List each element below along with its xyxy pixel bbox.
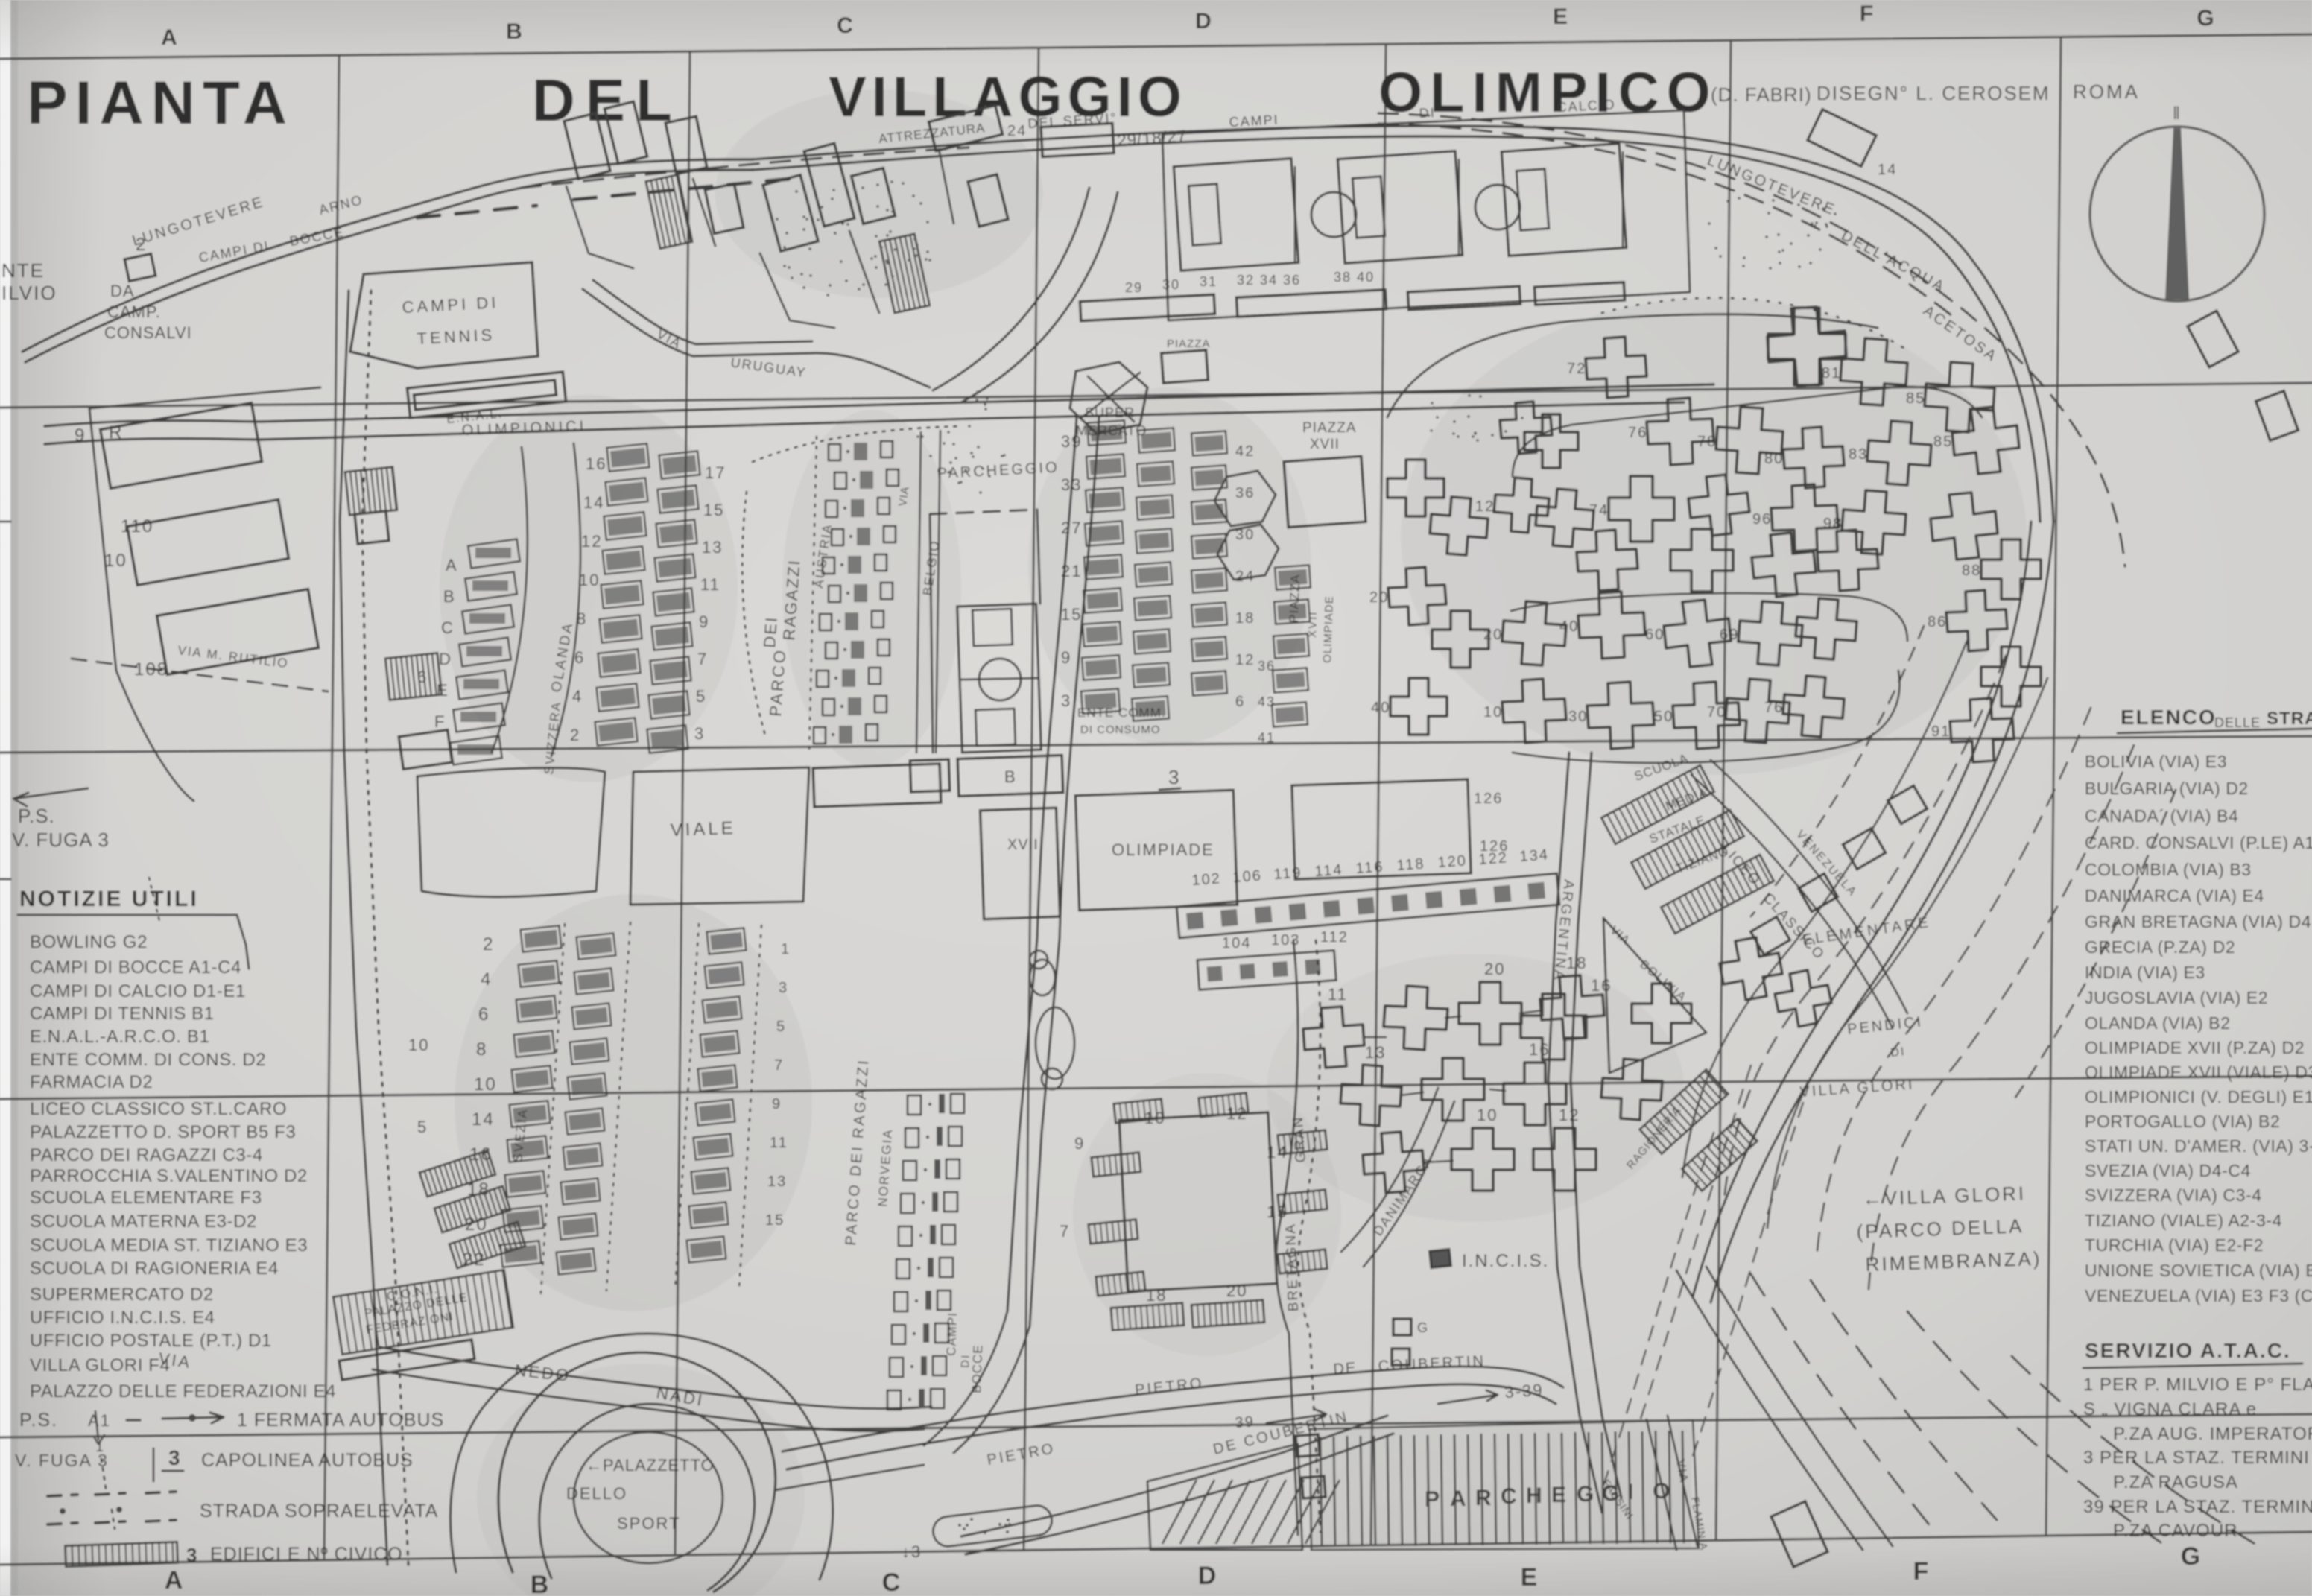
svg-text:6: 6 bbox=[574, 648, 585, 667]
svg-text:H: H bbox=[1526, 1483, 1544, 1508]
svg-text:9: 9 bbox=[699, 612, 709, 631]
svg-text:11: 11 bbox=[700, 575, 720, 594]
svg-text:CAMPI: CAMPI bbox=[1229, 113, 1279, 130]
svg-text:43: 43 bbox=[1258, 694, 1276, 709]
svg-text:PIANTA: PIANTA bbox=[27, 69, 294, 137]
svg-text:CAPOLINEA AUTOBUS: CAPOLINEA AUTOBUS bbox=[201, 1450, 414, 1471]
svg-text:R: R bbox=[109, 422, 123, 443]
svg-text:27: 27 bbox=[1061, 519, 1082, 537]
svg-text:A: A bbox=[161, 25, 177, 50]
svg-text:36: 36 bbox=[1235, 485, 1255, 501]
svg-text:8: 8 bbox=[476, 1039, 487, 1060]
svg-text:P: P bbox=[1425, 1487, 1441, 1512]
svg-text:16: 16 bbox=[586, 455, 606, 473]
svg-text:3: 3 bbox=[168, 1446, 182, 1469]
svg-text:6: 6 bbox=[478, 1004, 490, 1025]
svg-text:14: 14 bbox=[1878, 162, 1897, 178]
svg-text:7: 7 bbox=[774, 1057, 784, 1074]
svg-text:B: B bbox=[506, 19, 522, 44]
svg-text:F: F bbox=[1913, 1557, 1929, 1586]
svg-text:CARD. CONSALVI (P.LE) A1: CARD. CONSALVI (P.LE) A1 bbox=[2085, 833, 2312, 852]
svg-text:V. FUGA 3: V. FUGA 3 bbox=[15, 1451, 109, 1470]
svg-text:83: 83 bbox=[1849, 446, 1868, 463]
svg-text:16: 16 bbox=[1591, 976, 1612, 995]
svg-text:DE: DE bbox=[1333, 1360, 1358, 1378]
svg-text:PARROCCHIA S.VALENTINO D2: PARROCCHIA S.VALENTINO D2 bbox=[30, 1166, 308, 1186]
svg-text:BRETAGNA: BRETAGNA bbox=[1283, 1223, 1302, 1312]
svg-text:BULGARIA (VIA) D2: BULGARIA (VIA) D2 bbox=[2085, 779, 2249, 798]
svg-text:4: 4 bbox=[481, 969, 492, 989]
svg-text:81: 81 bbox=[1822, 365, 1841, 381]
svg-text:30: 30 bbox=[1162, 277, 1180, 292]
svg-text:C: C bbox=[441, 618, 455, 637]
svg-text:103: 103 bbox=[1271, 932, 1300, 949]
svg-text:10: 10 bbox=[1144, 1109, 1165, 1127]
svg-text:E.N.A.L.-A.R.C.O. B1: E.N.A.L.-A.R.C.O. B1 bbox=[30, 1027, 209, 1047]
svg-text:40: 40 bbox=[1559, 618, 1579, 635]
svg-text:2: 2 bbox=[483, 934, 494, 954]
svg-text:88: 88 bbox=[1962, 563, 1981, 579]
svg-text:12: 12 bbox=[1559, 1106, 1580, 1124]
svg-text:P.S.: P.S. bbox=[18, 805, 55, 827]
svg-text:GRECIA (P.ZA) D2: GRECIA (P.ZA) D2 bbox=[2085, 937, 2235, 957]
svg-text:78: 78 bbox=[1697, 434, 1717, 450]
svg-text:D: D bbox=[1195, 9, 1212, 34]
svg-text:12: 12 bbox=[581, 532, 602, 551]
svg-text:3: 3 bbox=[1168, 766, 1180, 788]
svg-text:DI: DI bbox=[1419, 105, 1436, 121]
svg-text:PIAZZA: PIAZZA bbox=[1287, 574, 1302, 623]
svg-text:118: 118 bbox=[1396, 855, 1425, 874]
svg-text:32 34 36: 32 34 36 bbox=[1237, 273, 1301, 288]
svg-text:SCUOLA MATERNA E3-D2: SCUOLA MATERNA E3-D2 bbox=[30, 1212, 257, 1232]
svg-text:PALAZZETTO D. SPORT B5 F3: PALAZZETTO D. SPORT B5 F3 bbox=[30, 1122, 296, 1142]
svg-text:98: 98 bbox=[1823, 516, 1843, 532]
svg-text:85: 85 bbox=[1933, 434, 1953, 450]
svg-text:10: 10 bbox=[474, 1074, 497, 1095]
svg-text:33: 33 bbox=[1061, 475, 1082, 494]
svg-text:17: 17 bbox=[705, 463, 726, 482]
svg-text:36: 36 bbox=[1258, 659, 1276, 674]
svg-text:DELLE: DELLE bbox=[2214, 715, 2261, 730]
svg-text:UNIONE SOVIETICA (VIA) B3: UNIONE SOVIETICA (VIA) B3 bbox=[2085, 1261, 2312, 1280]
svg-text:E: E bbox=[1551, 1483, 1568, 1507]
svg-text:74: 74 bbox=[1589, 502, 1609, 519]
svg-text:DEI: DEI bbox=[760, 615, 781, 648]
svg-text:86: 86 bbox=[1928, 614, 1947, 630]
svg-text:10: 10 bbox=[104, 551, 127, 571]
svg-text:D: D bbox=[439, 650, 452, 668]
svg-text:5: 5 bbox=[417, 1118, 428, 1136]
svg-text:6: 6 bbox=[1235, 694, 1245, 710]
svg-text:OLANDA (VIA) B2: OLANDA (VIA) B2 bbox=[2085, 1013, 2231, 1033]
svg-text:110: 110 bbox=[121, 516, 153, 536]
svg-text:R: R bbox=[1475, 1486, 1493, 1510]
svg-text:PORTOGALLO (VIA) B2: PORTOGALLO (VIA) B2 bbox=[2085, 1112, 2280, 1131]
svg-text:13: 13 bbox=[767, 1174, 787, 1190]
svg-text:OLIMPIADE: OLIMPIADE bbox=[1112, 840, 1214, 859]
svg-text:STRADE: STRADE bbox=[2267, 709, 2312, 729]
svg-text:G: G bbox=[1577, 1482, 1595, 1507]
svg-text:16: 16 bbox=[1529, 1040, 1550, 1059]
svg-text:72: 72 bbox=[1567, 361, 1586, 377]
svg-text:SUPER: SUPER bbox=[1085, 405, 1135, 420]
svg-text:UFFICIO I.N.C.I.S. E4: UFFICIO I.N.C.I.S. E4 bbox=[30, 1308, 215, 1328]
svg-text:P.ZA AUG. IMPERATORE: P.ZA AUG. IMPERATORE bbox=[2113, 1424, 2312, 1444]
svg-text:DA: DA bbox=[110, 282, 135, 300]
svg-text:9: 9 bbox=[1061, 648, 1071, 667]
svg-text:(D. FABRI): (D. FABRI) bbox=[1711, 83, 1812, 106]
svg-text:7: 7 bbox=[1060, 1222, 1070, 1241]
svg-text:MERCATO: MERCATO bbox=[1076, 423, 1147, 438]
svg-text:85: 85 bbox=[1906, 390, 1925, 407]
svg-text:JUGOSLAVIA (VIA) E2: JUGOSLAVIA (VIA) E2 bbox=[2085, 988, 2268, 1007]
svg-text:VIALE: VIALE bbox=[670, 818, 736, 840]
svg-text:INDIA (VIA) E3: INDIA (VIA) E3 bbox=[2085, 963, 2205, 982]
svg-text:B: B bbox=[443, 587, 456, 606]
svg-text:60: 60 bbox=[1645, 627, 1665, 643]
svg-text:10: 10 bbox=[579, 571, 600, 589]
svg-text:CALCIO: CALCIO bbox=[1556, 97, 1616, 115]
svg-text:P.S.: P.S. bbox=[19, 1410, 58, 1431]
svg-text:91: 91 bbox=[1931, 723, 1951, 740]
svg-text:18: 18 bbox=[1146, 1286, 1167, 1305]
svg-text:114: 114 bbox=[1314, 861, 1343, 880]
svg-text:1: 1 bbox=[781, 941, 791, 957]
svg-text:11: 11 bbox=[1328, 985, 1348, 1004]
svg-text:126: 126 bbox=[1474, 791, 1503, 807]
svg-text:13: 13 bbox=[1365, 1043, 1386, 1062]
svg-text:SCUOLA ELEMENTARE F3: SCUOLA ELEMENTARE F3 bbox=[30, 1188, 262, 1208]
svg-text:C: C bbox=[1501, 1484, 1518, 1509]
svg-text:6: 6 bbox=[417, 668, 428, 686]
svg-text:13: 13 bbox=[702, 538, 723, 557]
svg-text:GRAN BRETAGNA (VIA) D4: GRAN BRETAGNA (VIA) D4 bbox=[2085, 912, 2311, 931]
svg-text:CONSALVI: CONSALVI bbox=[104, 323, 192, 342]
svg-text:14: 14 bbox=[583, 493, 604, 512]
svg-text:12: 12 bbox=[1475, 498, 1495, 515]
svg-text:126: 126 bbox=[1480, 838, 1509, 855]
svg-text:15: 15 bbox=[1267, 1203, 1288, 1221]
svg-text:A: A bbox=[165, 1566, 183, 1595]
svg-text:CANADA´ (VIA) B4: CANADA´ (VIA) B4 bbox=[2085, 806, 2238, 826]
svg-text:OLIMPIONICI (V. DEGLI) E1-F1: OLIMPIONICI (V. DEGLI) E1-F1 bbox=[2085, 1087, 2312, 1106]
svg-text:3: 3 bbox=[779, 980, 788, 996]
svg-text:VILLAGGIO: VILLAGGIO bbox=[829, 66, 1187, 129]
svg-text:20: 20 bbox=[1369, 589, 1389, 606]
svg-text:ROMA: ROMA bbox=[2073, 80, 2140, 103]
svg-text:SUPERMERCATO D2: SUPERMERCATO D2 bbox=[30, 1285, 214, 1305]
svg-text:STATI UN. D'AMER. (VIA) 3-4: STATI UN. D'AMER. (VIA) 3-4 bbox=[2085, 1136, 2312, 1156]
svg-text:2: 2 bbox=[570, 726, 580, 744]
svg-text:116: 116 bbox=[1355, 858, 1384, 877]
svg-text:CAMPI DI BOCCE A1-C4: CAMPI DI BOCCE A1-C4 bbox=[30, 957, 241, 978]
svg-text:70: 70 bbox=[1707, 704, 1726, 721]
svg-text:29: 29 bbox=[1125, 280, 1143, 295]
svg-text:A: A bbox=[446, 556, 458, 574]
svg-text:STRADA SOPRAELEVATA: STRADA SOPRAELEVATA bbox=[200, 1501, 438, 1521]
svg-text:G: G bbox=[2197, 6, 2214, 31]
svg-text:20: 20 bbox=[1226, 1282, 1247, 1300]
svg-text:3-39: 3-39 bbox=[1504, 1380, 1545, 1402]
svg-text:14: 14 bbox=[1267, 1143, 1288, 1162]
svg-text:COLOMBIA (VIA) B3: COLOMBIA (VIA) B3 bbox=[2085, 860, 2252, 879]
svg-text:OLIMPIADE: OLIMPIADE bbox=[1321, 595, 1336, 663]
svg-text:3: 3 bbox=[694, 724, 705, 743]
svg-text:50: 50 bbox=[1654, 709, 1673, 725]
svg-text:NTE: NTE bbox=[1, 259, 45, 282]
svg-text:I: I bbox=[1627, 1480, 1635, 1504]
svg-text:120: 120 bbox=[1437, 852, 1468, 871]
svg-text:119: 119 bbox=[1273, 864, 1302, 883]
svg-text:SCUOLA MEDIA ST. TIZIANO E3: SCUOLA MEDIA ST. TIZIANO E3 bbox=[30, 1235, 308, 1255]
svg-text:104: 104 bbox=[1222, 935, 1251, 951]
svg-text:7: 7 bbox=[697, 650, 708, 668]
svg-text:F: F bbox=[434, 712, 446, 731]
svg-text:24: 24 bbox=[1007, 123, 1027, 139]
svg-text:B: B bbox=[531, 1571, 549, 1596]
svg-text:E: E bbox=[437, 681, 449, 700]
svg-text:1 PER P. MILVIO E P° FLAM.: 1 PER P. MILVIO E P° FLAM. bbox=[2083, 1375, 2312, 1395]
svg-text:VENEZUELA (VIA) E3 F3 (C3: VENEZUELA (VIA) E3 F3 (C3 bbox=[2085, 1286, 2312, 1305]
svg-text:15: 15 bbox=[703, 501, 724, 519]
svg-text:DISEGN° L. CEROSEM: DISEGN° L. CEROSEM bbox=[1817, 82, 2050, 104]
svg-text:↓3: ↓3 bbox=[902, 1542, 922, 1561]
svg-text:DI CONSUMO: DI CONSUMO bbox=[1080, 723, 1161, 736]
svg-text:21: 21 bbox=[1061, 562, 1082, 580]
svg-text:9: 9 bbox=[1074, 1134, 1085, 1153]
svg-text:ELENCO: ELENCO bbox=[2121, 706, 2217, 729]
svg-text:80: 80 bbox=[1764, 451, 1784, 467]
svg-text:12: 12 bbox=[1235, 652, 1255, 668]
svg-text:CAMPI: CAMPI bbox=[944, 1312, 960, 1356]
svg-text:10: 10 bbox=[1483, 704, 1503, 721]
svg-text:12: 12 bbox=[1226, 1104, 1247, 1123]
svg-text:G: G bbox=[1417, 1320, 1429, 1335]
svg-text:SVIZZERA (VIA) C3-4: SVIZZERA (VIA) C3-4 bbox=[2085, 1185, 2262, 1205]
svg-text:OLIMPIADE XVII (VIALE) D3: OLIMPIADE XVII (VIALE) D3 bbox=[2085, 1063, 2312, 1082]
svg-text:PARCO DEI RAGAZZI C3-4: PARCO DEI RAGAZZI C3-4 bbox=[30, 1145, 263, 1165]
svg-text:A1: A1 bbox=[88, 1411, 111, 1430]
svg-text:C: C bbox=[837, 13, 853, 38]
svg-text:UFFICIO POSTALE (P.T.) D1: UFFICIO POSTALE (P.T.) D1 bbox=[30, 1331, 272, 1351]
svg-text:20: 20 bbox=[1484, 960, 1505, 978]
svg-text:TURCHIA (VIA) E2-F2: TURCHIA (VIA) E2-F2 bbox=[2085, 1235, 2264, 1255]
svg-text:PIAZZA: PIAZZA bbox=[1302, 420, 1357, 436]
svg-text:BOWLING G2: BOWLING G2 bbox=[30, 932, 148, 952]
svg-text:SVEZIA (VIA) D4-C4: SVEZIA (VIA) D4-C4 bbox=[2085, 1161, 2251, 1180]
svg-text:BOCCE: BOCCE bbox=[969, 1344, 985, 1393]
svg-text:76: 76 bbox=[1764, 700, 1784, 716]
svg-text:39: 39 bbox=[1235, 1413, 1255, 1431]
svg-text:31: 31 bbox=[1200, 274, 1217, 289]
svg-text:VILLA GLORI F4: VILLA GLORI F4 bbox=[30, 1355, 170, 1375]
svg-text:XVII: XVII bbox=[1306, 610, 1320, 638]
svg-text:106: 106 bbox=[1232, 867, 1263, 886]
svg-text:15: 15 bbox=[1061, 605, 1082, 624]
svg-text:39 PER LA STAZ. TERMINI E: 39 PER LA STAZ. TERMINI E bbox=[2083, 1497, 2312, 1517]
svg-text:14: 14 bbox=[472, 1109, 495, 1130]
svg-text:5: 5 bbox=[776, 1019, 786, 1035]
svg-text:XVII: XVII bbox=[1310, 437, 1340, 452]
svg-text:3: 3 bbox=[186, 1544, 198, 1566]
svg-text:10: 10 bbox=[408, 1036, 429, 1054]
svg-text:3 PER LA STAZ. TERMINI e: 3 PER LA STAZ. TERMINI e bbox=[2083, 1448, 2312, 1468]
svg-text:SPORT: SPORT bbox=[617, 1514, 680, 1533]
svg-text:DANIMARCA (VIA) E4: DANIMARCA (VIA) E4 bbox=[2085, 886, 2264, 905]
svg-text:96: 96 bbox=[1752, 511, 1772, 528]
svg-text:P.ZA CAVOUR: P.ZA CAVOUR bbox=[2113, 1521, 2238, 1541]
svg-text:112: 112 bbox=[1320, 929, 1349, 946]
svg-text:E: E bbox=[1521, 1563, 1538, 1592]
svg-text:42: 42 bbox=[1235, 443, 1255, 460]
svg-text:G: G bbox=[2181, 1542, 2200, 1571]
svg-text:A: A bbox=[1450, 1486, 1468, 1511]
svg-text:P.ZA RAGUSA: P.ZA RAGUSA bbox=[2113, 1472, 2238, 1492]
svg-text:ILVIO: ILVIO bbox=[1, 282, 57, 304]
svg-text:30: 30 bbox=[1568, 709, 1588, 725]
svg-text:ENTE COMM. DI CONS. D2: ENTE COMM. DI CONS. D2 bbox=[30, 1050, 266, 1070]
svg-text:F: F bbox=[1860, 1, 1873, 26]
svg-text:EDIFICI E Nº CIVICO: EDIFICI E Nº CIVICO bbox=[210, 1544, 403, 1565]
svg-text:134: 134 bbox=[1519, 846, 1550, 865]
svg-text:BOLIVIA (VIA) E3: BOLIVIA (VIA) E3 bbox=[2085, 752, 2227, 771]
svg-text:PALAZZO DELLE FEDERAZIONI E4: PALAZZO DELLE FEDERAZIONI E4 bbox=[30, 1381, 336, 1402]
svg-text:1 FERMATA AUTOBUS: 1 FERMATA AUTOBUS bbox=[237, 1410, 444, 1431]
svg-text:SERVIZIO A.T.A.C.: SERVIZIO A.T.A.C. bbox=[2085, 1339, 2291, 1362]
svg-text:DELLO: DELLO bbox=[566, 1484, 627, 1503]
svg-text:DI: DI bbox=[1890, 1045, 1907, 1060]
svg-text:LICEO CLASSICO ST.L.CARO: LICEO CLASSICO ST.L.CARO bbox=[30, 1099, 287, 1119]
svg-text:18: 18 bbox=[1566, 954, 1587, 972]
svg-text:41: 41 bbox=[1258, 730, 1276, 745]
svg-text:OLIMPIADE XVII (P.ZA) D2: OLIMPIADE XVII (P.ZA) D2 bbox=[2085, 1038, 2305, 1057]
svg-text:69: 69 bbox=[1720, 627, 1739, 643]
svg-text:S „ VIGNA CLARA e: S „ VIGNA CLARA e bbox=[2083, 1399, 2257, 1419]
svg-text:3: 3 bbox=[1061, 691, 1071, 710]
svg-text:76: 76 bbox=[1628, 425, 1647, 441]
svg-text:10: 10 bbox=[1477, 1106, 1498, 1124]
svg-text:NOTIZIE UTILI: NOTIZIE UTILI bbox=[19, 887, 199, 911]
svg-text:E: E bbox=[1553, 4, 1568, 29]
svg-text:C: C bbox=[882, 1568, 901, 1596]
svg-text:FARMACIA D2: FARMACIA D2 bbox=[30, 1072, 153, 1092]
svg-text:38 40: 38 40 bbox=[1334, 270, 1375, 285]
svg-text:ENTE COMM.: ENTE COMM. bbox=[1077, 706, 1166, 720]
svg-text:CAMPI DI CALCIO D1-E1: CAMPI DI CALCIO D1-E1 bbox=[30, 981, 246, 1001]
svg-text:5: 5 bbox=[696, 687, 706, 706]
svg-text:←PALAZZETTO: ←PALAZZETTO bbox=[586, 1456, 715, 1475]
svg-text:GRAN: GRAN bbox=[1290, 1115, 1309, 1163]
svg-text:SCUOLA DI RAGIONERIA E4: SCUOLA DI RAGIONERIA E4 bbox=[30, 1258, 279, 1279]
svg-text:40: 40 bbox=[1371, 700, 1390, 716]
svg-text:TIZIANO (VIALE) A2-3-4: TIZIANO (VIALE) A2-3-4 bbox=[2085, 1211, 2282, 1230]
svg-text:9: 9 bbox=[772, 1096, 782, 1112]
svg-text:15: 15 bbox=[765, 1212, 785, 1229]
svg-text:XVII: XVII bbox=[1007, 837, 1039, 853]
svg-text:9: 9 bbox=[75, 425, 86, 446]
svg-text:‖: ‖ bbox=[2173, 104, 2182, 124]
svg-text:PIAZZA: PIAZZA bbox=[1167, 338, 1211, 350]
svg-text:V. FUGA 3: V. FUGA 3 bbox=[12, 829, 110, 851]
svg-text:D: D bbox=[1198, 1562, 1217, 1590]
svg-text:CAMPI DI TENNIS B1: CAMPI DI TENNIS B1 bbox=[30, 1004, 215, 1024]
svg-text:2: 2 bbox=[136, 235, 147, 255]
svg-text:I.N.C.I.S.: I.N.C.I.S. bbox=[1462, 1251, 1549, 1271]
svg-text:B: B bbox=[1004, 767, 1017, 786]
svg-text:11: 11 bbox=[770, 1135, 788, 1151]
svg-text:18: 18 bbox=[1235, 610, 1255, 627]
svg-text:102: 102 bbox=[1191, 870, 1222, 889]
svg-text:4: 4 bbox=[572, 687, 583, 706]
